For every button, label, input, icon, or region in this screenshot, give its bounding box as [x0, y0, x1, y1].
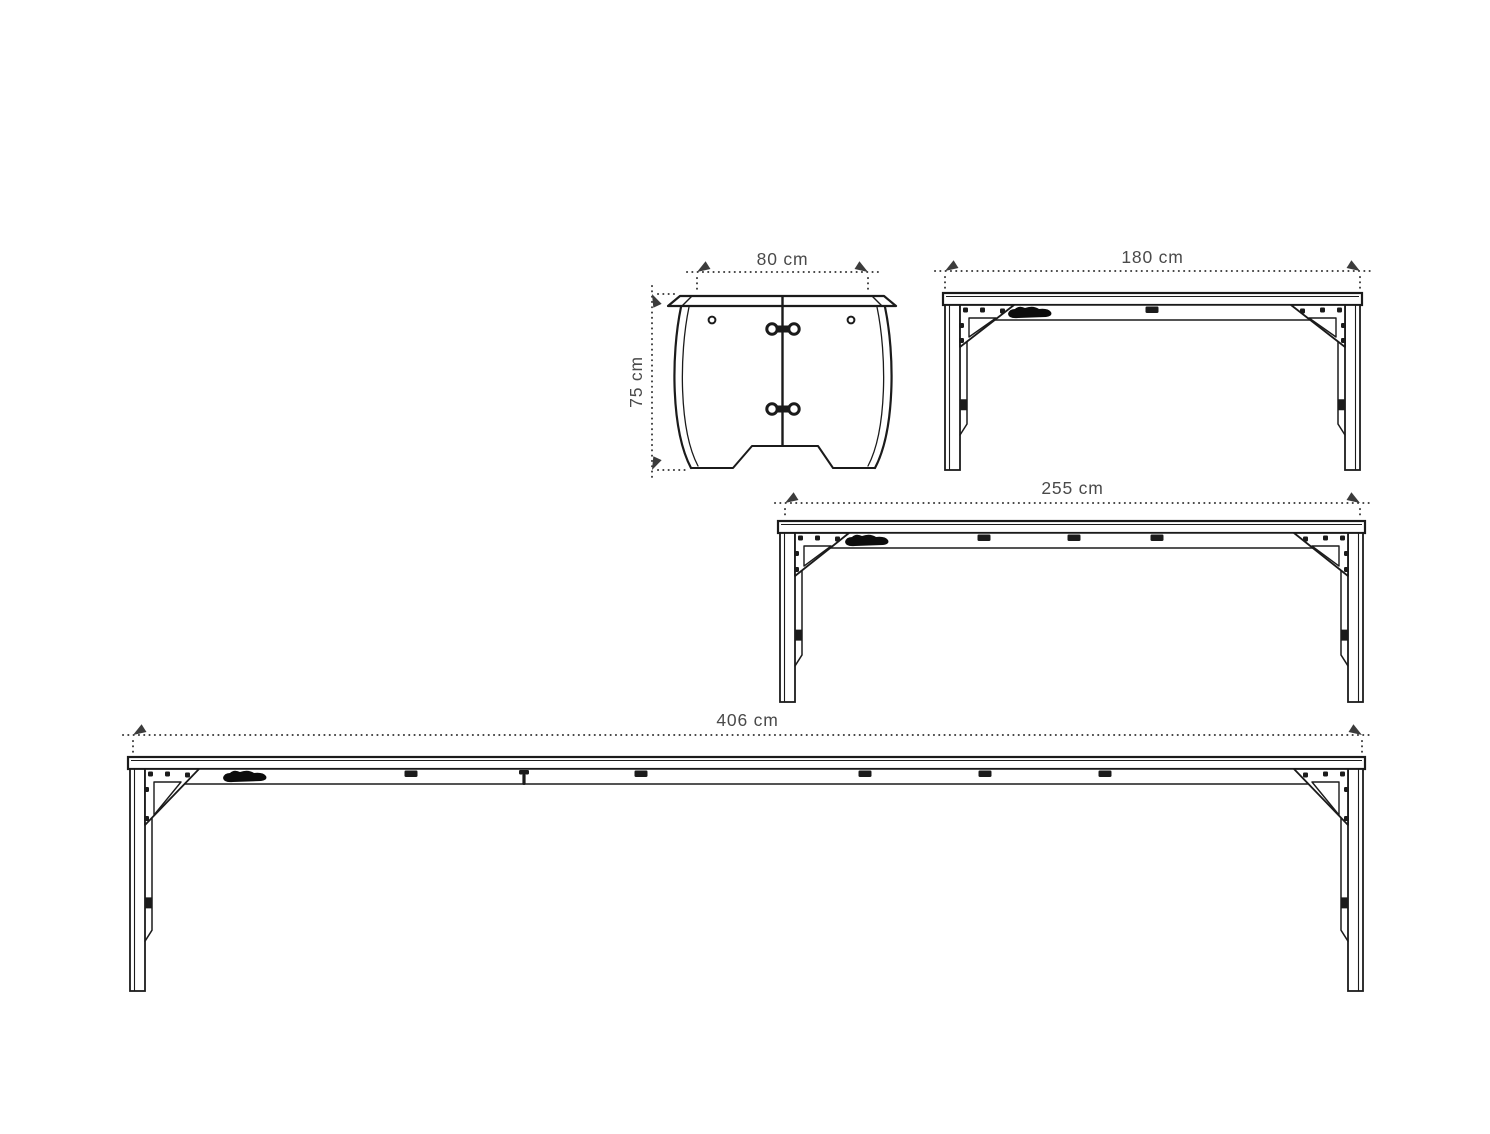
- side-view-255-dim-label: 255 cm: [785, 478, 1360, 498]
- mounting-hole: [848, 317, 855, 324]
- tabletop: [943, 293, 1362, 305]
- table-views-line-art: [0, 0, 1490, 1134]
- end-view-height-dim-label: 75 cm: [626, 352, 646, 412]
- table-end-view: [668, 296, 896, 468]
- left-gusset-bracket: [959, 305, 1014, 347]
- right-gusset-bracket: [1291, 305, 1346, 347]
- end-view-width-dim-label: 80 cm: [697, 249, 868, 269]
- side-view-406-dim-label: 406 cm: [133, 710, 1362, 730]
- left-gusset-bracket: [144, 769, 199, 825]
- tabletop: [128, 757, 1365, 769]
- side-view-180-dim-label: 180 cm: [945, 247, 1360, 267]
- mounting-hole: [709, 317, 716, 324]
- table-side-view-255: [778, 521, 1365, 702]
- left-gusset-bracket: [794, 533, 849, 576]
- right-gusset-bracket: [1294, 533, 1349, 576]
- table-side-view-180: [943, 293, 1362, 470]
- furniture-dimension-diagram: 80 cm 75 cm 180 cm 255 cm 406 cm: [0, 0, 1490, 1134]
- dimension-arrowhead: [648, 456, 662, 472]
- table-side-view-406: [128, 757, 1365, 991]
- apron-rail: [145, 769, 1348, 784]
- dimension-arrowhead: [648, 292, 662, 308]
- right-gusset-bracket: [1294, 769, 1349, 825]
- tabletop: [778, 521, 1365, 533]
